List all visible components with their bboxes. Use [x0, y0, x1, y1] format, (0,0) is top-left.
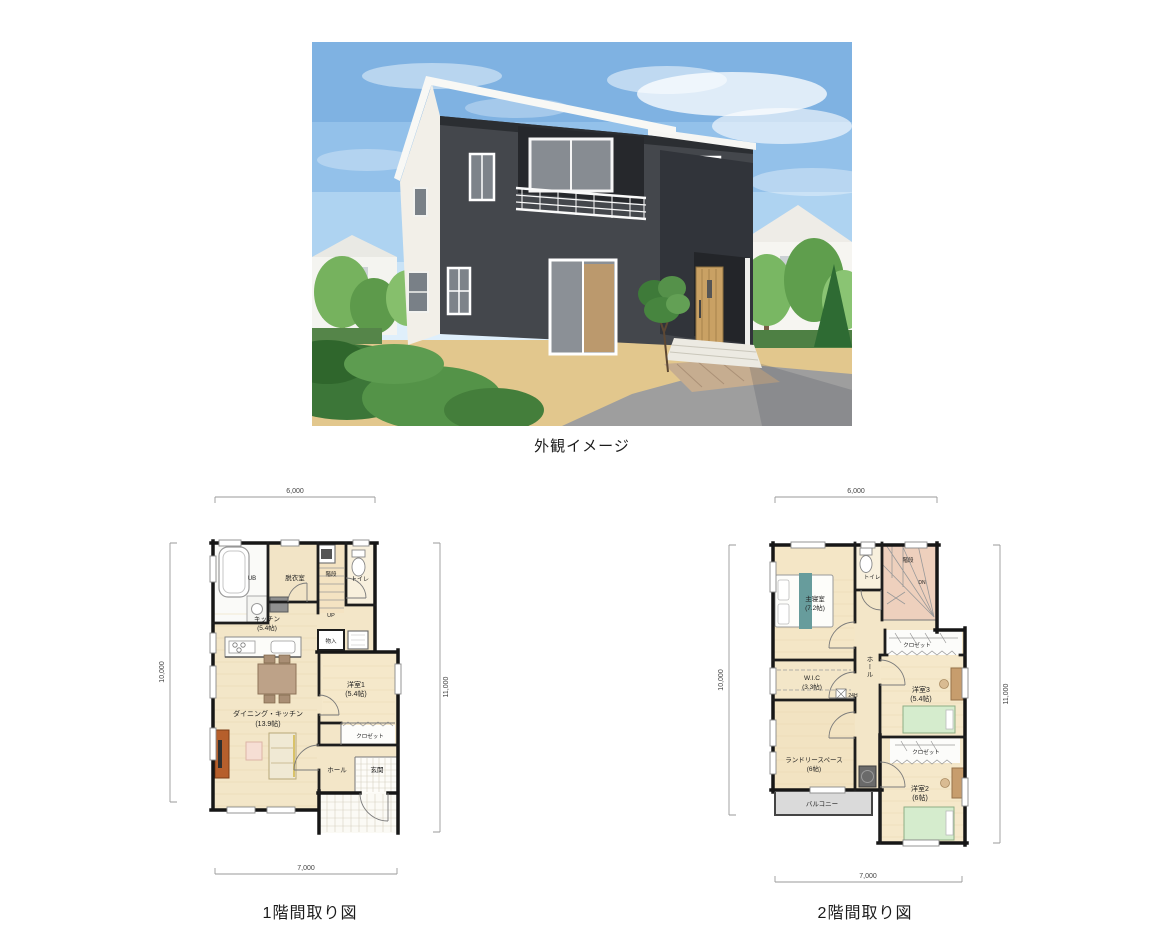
- label-room2: 洋室2: [911, 784, 929, 793]
- label-toilet: トイレ: [351, 577, 369, 583]
- label-room1: 洋室1: [347, 680, 365, 689]
- label-vent: 24H: [848, 693, 858, 699]
- floor1-dim-right: 11,000: [443, 676, 450, 697]
- label-wic: W.I.C: [804, 675, 820, 682]
- label-stairs-2f: 階段: [902, 556, 914, 564]
- label-storage: 物入: [325, 637, 337, 645]
- label-laundry-size: (6帖): [807, 764, 821, 773]
- exterior-rendering: [312, 42, 852, 426]
- label-room1-size: (5.4帖): [345, 689, 366, 698]
- label-hall: ホール: [327, 766, 347, 774]
- label-laundry: ランドリースペース: [785, 756, 842, 764]
- exterior-caption: 外観イメージ: [312, 435, 852, 456]
- floor2-dim-left: 10,000: [718, 669, 725, 691]
- label-kitchen: キッチン: [254, 615, 280, 623]
- side-window-upper: [414, 188, 427, 216]
- label-entrance: 玄関: [371, 765, 384, 774]
- label-dressing: 脱衣室: [285, 573, 305, 582]
- floor2-dim-bottom: 7,000: [859, 873, 877, 880]
- toilet-bowl: [352, 558, 365, 576]
- porch-post: [745, 258, 750, 350]
- label-toilet-2f: トイレ: [864, 575, 881, 581]
- label-room2-size: (6帖): [912, 793, 928, 802]
- floor1-caption: 1階間取り図: [145, 899, 475, 923]
- floor1-plan: 6,000 10,000 11,000 7,000: [155, 480, 485, 890]
- toilet-bowl-2f: [860, 556, 872, 573]
- low-table: [246, 742, 262, 760]
- floor1-dim-bottom: 7,000: [297, 865, 315, 872]
- floor2-caption: 2階間取り図: [700, 899, 1030, 923]
- label-hall-2f: ホール: [863, 656, 873, 702]
- label-closet-room3: クロゼット: [903, 641, 931, 649]
- label-balcony: バルコニー: [806, 800, 838, 808]
- dining-table: [258, 664, 296, 694]
- label-stairs: 階段: [325, 570, 337, 578]
- label-closet-room2: クロゼット: [912, 748, 940, 756]
- sofa: [269, 733, 296, 779]
- floor2-dim-top: 6,000: [847, 488, 865, 495]
- desk-room3: [951, 668, 963, 700]
- floor1-dim-top: 6,000: [286, 488, 304, 495]
- label-wic-size: (3.3帖): [802, 682, 822, 691]
- entrance: [660, 150, 762, 368]
- label-closet: クロゼット: [356, 732, 384, 740]
- label-dining-kitchen: ダイニング・キッチン: [233, 709, 303, 718]
- label-up: UP: [327, 613, 335, 619]
- label-dn: DN: [918, 580, 926, 586]
- label-ub: UB: [248, 576, 256, 582]
- floor1-dim-left: 10,000: [159, 661, 166, 683]
- label-room3: 洋室3: [912, 685, 930, 694]
- label-master: 主寝室: [805, 594, 825, 603]
- page: 外観イメージ 6,000 10,000 11,000 7,000: [0, 0, 1160, 952]
- floor2-dim-right: 11,000: [1003, 683, 1010, 704]
- bathroom-sink: [252, 604, 263, 615]
- label-master-size: (7.2帖): [805, 603, 825, 612]
- refrigerator: [270, 597, 288, 612]
- label-dining-kitchen-size: (13.9帖): [255, 719, 280, 728]
- kitchen-sink: [271, 641, 295, 653]
- label-kitchen-size: (5.4帖): [257, 623, 277, 632]
- floor2-plan: 6,000 10,000 11,000 7,000: [715, 480, 1045, 890]
- label-room3-size: (5.4帖): [910, 694, 931, 703]
